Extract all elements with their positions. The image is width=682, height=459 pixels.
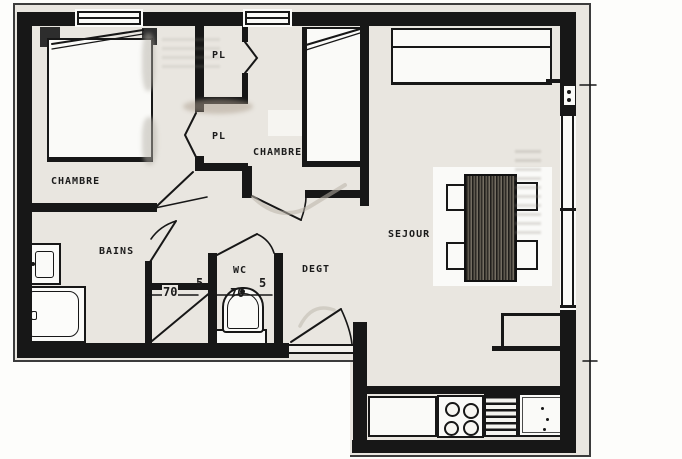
outer-line-left	[13, 3, 15, 362]
window-east-cap-top	[560, 113, 576, 116]
dining-table	[464, 174, 517, 282]
wall-placard-south	[195, 163, 248, 171]
room-label-degt: DEGT	[302, 264, 330, 275]
bay-window-rail	[393, 46, 550, 48]
dim-partition-left: 5	[196, 276, 203, 290]
wall-shower-north	[145, 283, 215, 290]
window-east-mullion	[560, 208, 576, 211]
bay-window-sill	[391, 82, 552, 85]
dim-partition-right: 5	[259, 276, 266, 290]
dim-wc-width: 70	[230, 286, 244, 300]
sink-drain-dot	[546, 418, 549, 421]
wall-placard-east-b	[242, 73, 248, 104]
wall-sejour-south	[352, 440, 576, 453]
bed-chambre-1	[47, 38, 153, 162]
room-label-placard-top: PL	[212, 50, 226, 61]
outer-line-bottom-east	[350, 455, 591, 457]
chair-bottom-right	[514, 240, 538, 270]
bleed-through-text	[515, 150, 541, 238]
panel-dot	[567, 90, 571, 94]
bay-window-end-cap	[546, 79, 564, 83]
scan-smudge	[142, 117, 157, 165]
panel-dot	[567, 98, 571, 102]
wall-shower-west	[145, 261, 152, 345]
burner-icon	[463, 403, 479, 419]
wall-sejour-west	[353, 322, 367, 440]
wall-chambre2-sejour	[360, 18, 369, 206]
wall-placard-east-a	[242, 26, 248, 42]
correction-patch	[268, 110, 302, 136]
drainer	[484, 394, 518, 437]
scan-smudge	[142, 33, 155, 91]
window-east-cap-bottom	[560, 305, 576, 308]
window-chambre1-mullion	[79, 17, 139, 19]
bar-counter-left	[501, 313, 504, 349]
sink-drain-dot	[543, 428, 546, 431]
room-label-bains: BAINS	[99, 246, 134, 257]
outer-line-right	[589, 3, 591, 457]
stove	[437, 395, 484, 438]
room-label-placard-bottom: PL	[212, 131, 226, 142]
wall-wc-west	[208, 253, 217, 345]
bay-window-sejour	[391, 28, 552, 85]
wall-west	[17, 12, 32, 345]
entry-threshold	[289, 344, 353, 354]
outer-line-bottom-west	[13, 360, 353, 362]
wall-top-b	[143, 12, 243, 26]
bed-chambre-2	[302, 27, 363, 167]
room-label-wc: WC	[233, 265, 247, 276]
kitchen-worktop	[368, 396, 437, 437]
burner-icon	[444, 421, 459, 436]
room-label-chambre1: CHAMBRE	[51, 176, 100, 187]
bar-counter-top	[501, 313, 568, 316]
bar-counter-bottom	[492, 346, 570, 351]
wall-wc-east	[274, 253, 283, 345]
room-label-sejour: SEJOUR	[388, 229, 430, 240]
wall-chambre2-south	[305, 190, 369, 198]
window-chambre2-mullion	[247, 17, 288, 19]
wall-panel-box	[563, 85, 576, 106]
wall-top-c	[292, 12, 576, 26]
burner-icon	[463, 420, 479, 436]
wall-chambre1-south	[17, 203, 157, 212]
sink-drain-dot	[541, 407, 544, 410]
floor-plan-scan: CHAMBRE PL PL CHAMBRE BAINS WC DEGT SEJO…	[0, 0, 682, 459]
washbasin-bowl	[35, 251, 54, 278]
wall-east-lower	[560, 308, 576, 453]
kitchen-zone-edge	[354, 386, 568, 394]
dim-shower-width: 70	[162, 285, 178, 299]
burner-icon	[445, 402, 460, 417]
scan-smudge	[183, 99, 253, 114]
wall-bains-south	[17, 343, 289, 358]
outer-line-top	[13, 3, 591, 5]
sink-inner	[522, 397, 561, 433]
room-label-chambre2: CHAMBRE	[253, 147, 302, 158]
